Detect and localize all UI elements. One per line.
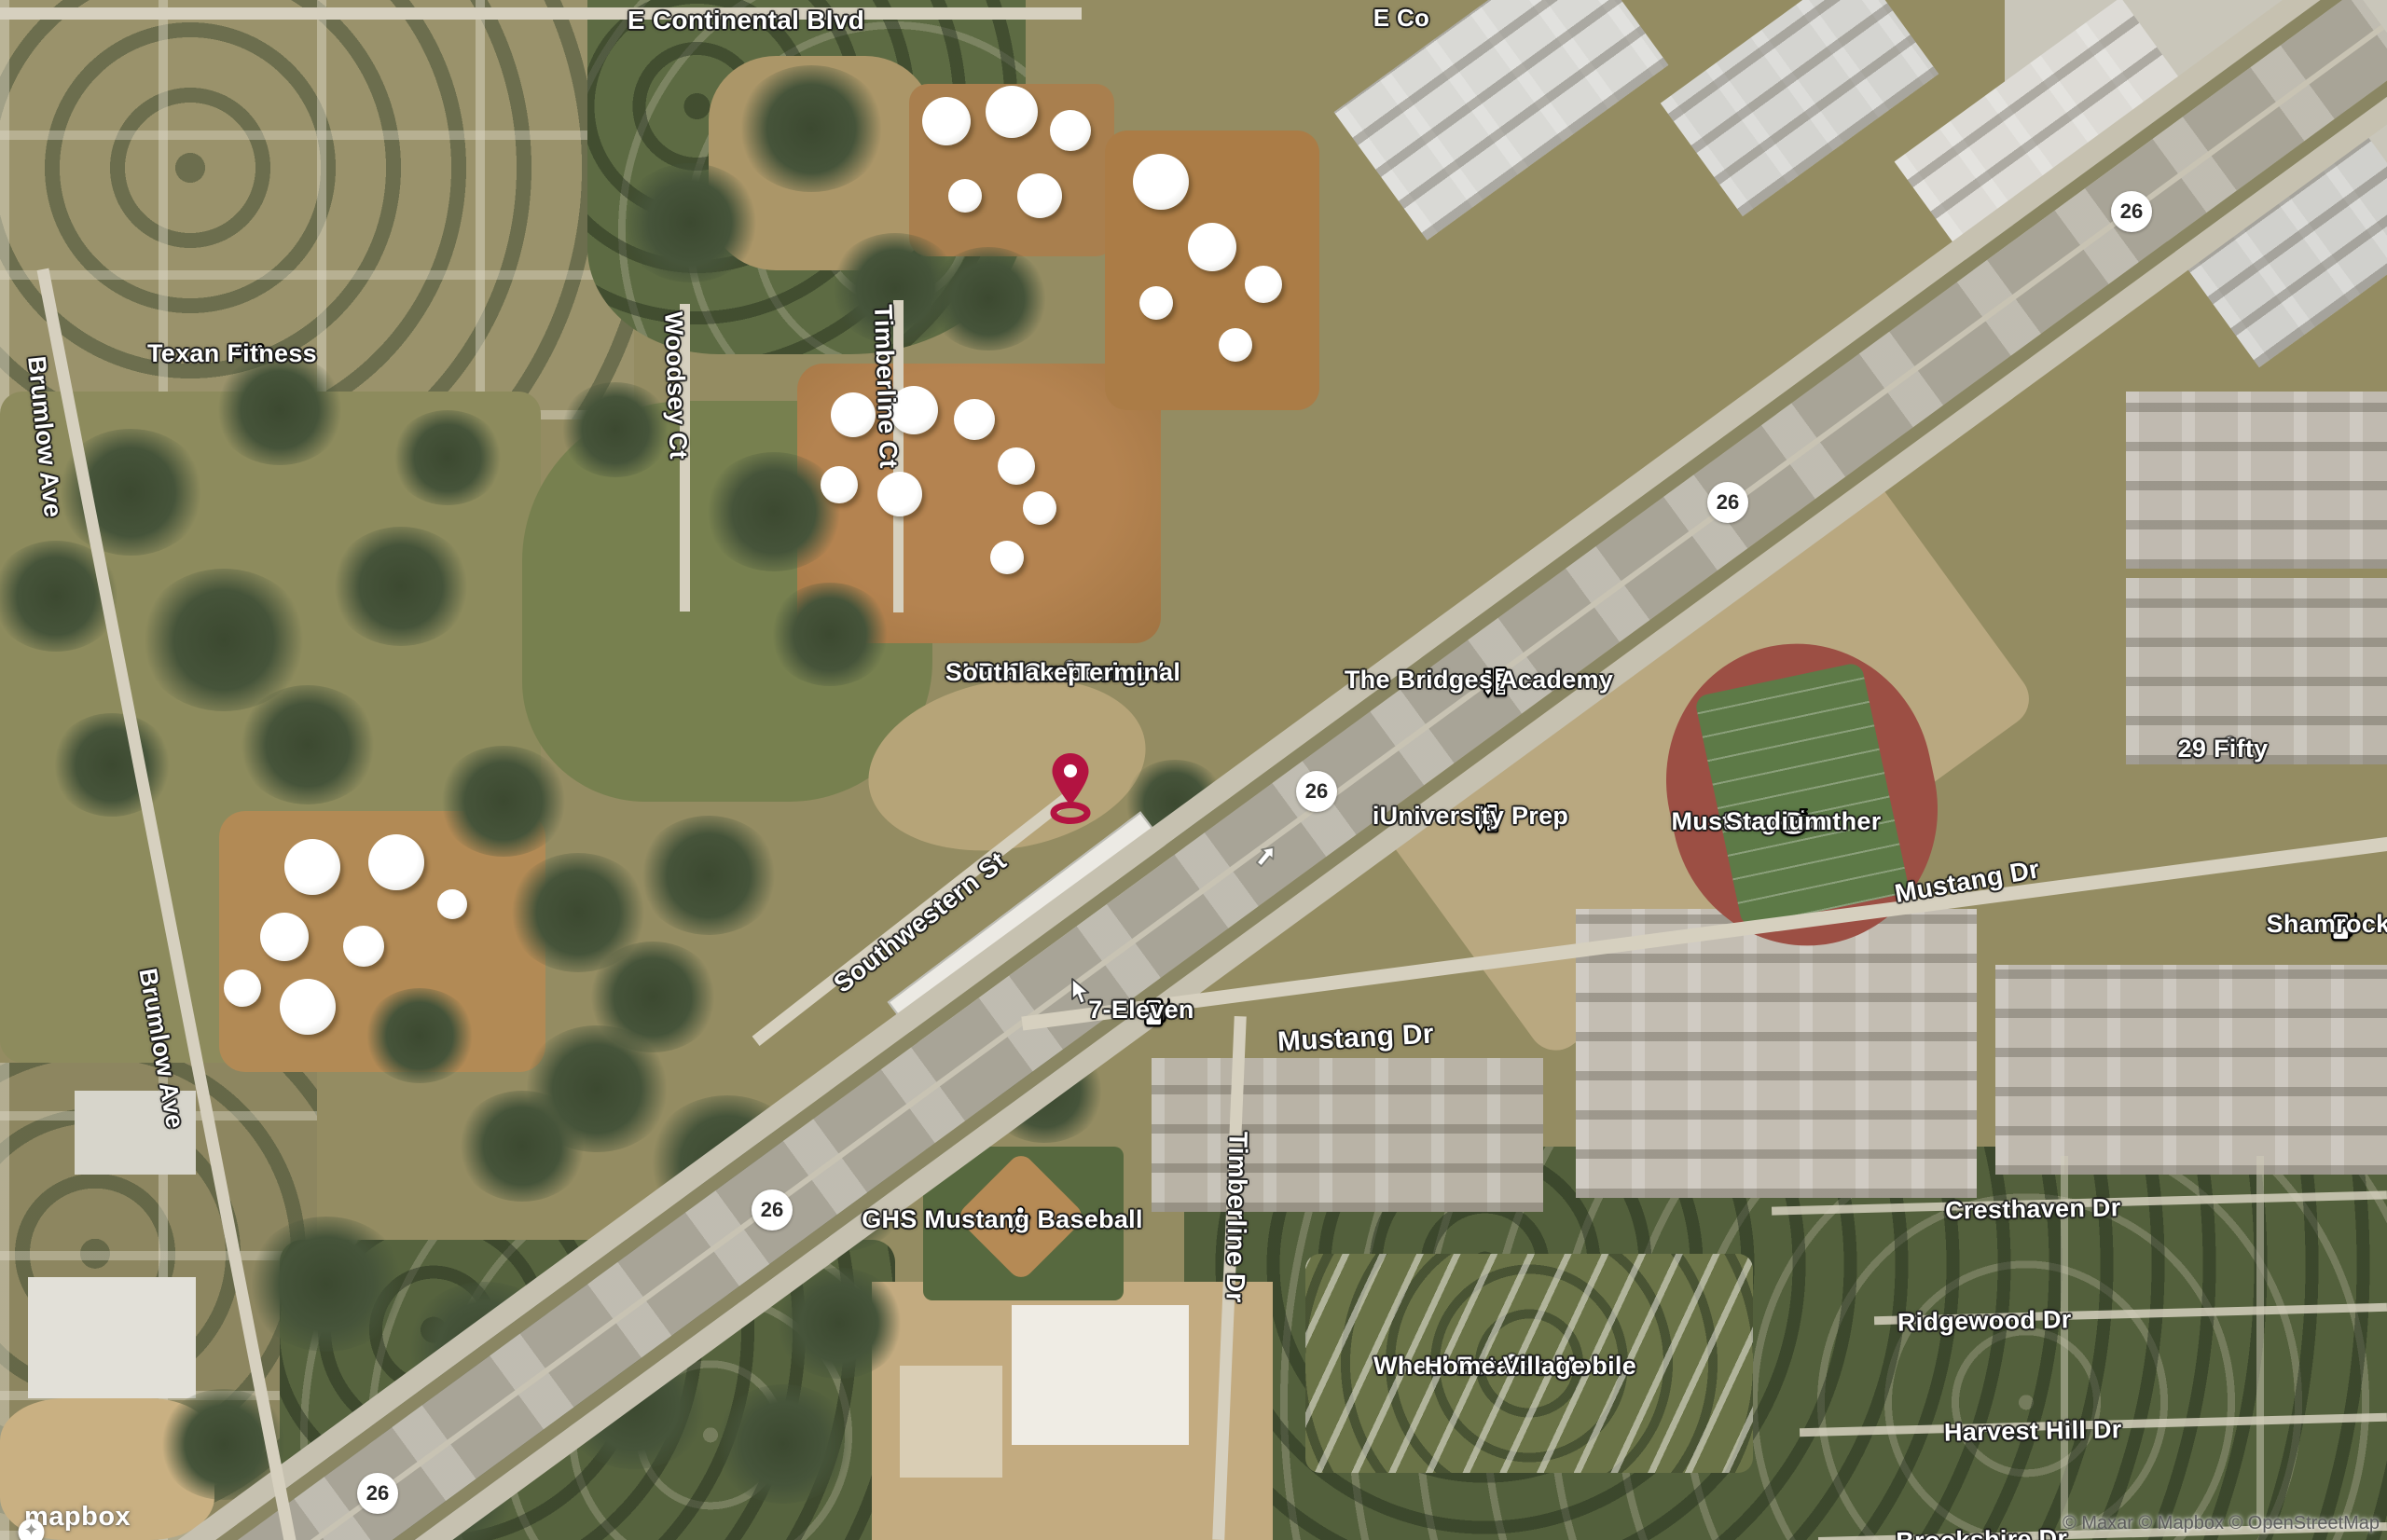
label-text: Timberline Ct [868,304,903,469]
route-shield-26: 26 [1707,482,1748,523]
label-text: Ridgewood Dr [1897,1305,2072,1337]
route-shield-26: 26 [2111,191,2152,232]
label-text: Brumlow Ave [132,966,189,1131]
label-text: Southlake Terminal [945,658,1180,687]
label-text: 7-Eleven [1088,996,1193,1024]
label-text: Mustang Dr [1893,854,2042,909]
route-shield-26: 26 [357,1473,398,1514]
label-text: Harvest Hill Dr [1944,1415,2122,1447]
label-text: Home Village [1425,1352,1586,1381]
label-text: Stadium [1726,807,1828,836]
label-text: 29 Fifty [2178,735,2269,763]
label-text: Brookshire Dr [1896,1524,2067,1540]
label-text: Cresthaven Dr [1945,1193,2121,1225]
label-text: E Co [1373,5,1429,33]
map-attribution[interactable]: © Maxar © Mapbox © OpenStreetMap [2063,1513,2380,1534]
label-text: Timberline Dr [1220,1132,1252,1303]
label-text: Mustang Dr [1276,1019,1435,1059]
label-text: E Continental Blvd [628,6,864,35]
label-text: Shamrock [2267,910,2387,939]
label-text: Texan Fitness [147,339,317,368]
label-text: The Bridges Academy [1345,666,1613,694]
label-text: GHS Mustang Baseball [862,1205,1143,1234]
satellite-map-canvas[interactable]: E Continental BlvdE CoTexan FitnessBruml… [0,0,2387,1540]
label-text: Woodsey Ct [658,311,693,461]
route-shield-26: 26 [1296,771,1337,812]
mapbox-logo[interactable]: mapbox [17,1502,131,1533]
route-shield-26: 26 [752,1189,793,1231]
label-text: iUniversity Prep [1373,802,1568,831]
label-text: Brumlow Ave [21,355,67,519]
labels-layer: E Continental BlvdE CoTexan FitnessBruml… [0,0,2387,1540]
label-text: Southwestern St [828,846,1012,999]
